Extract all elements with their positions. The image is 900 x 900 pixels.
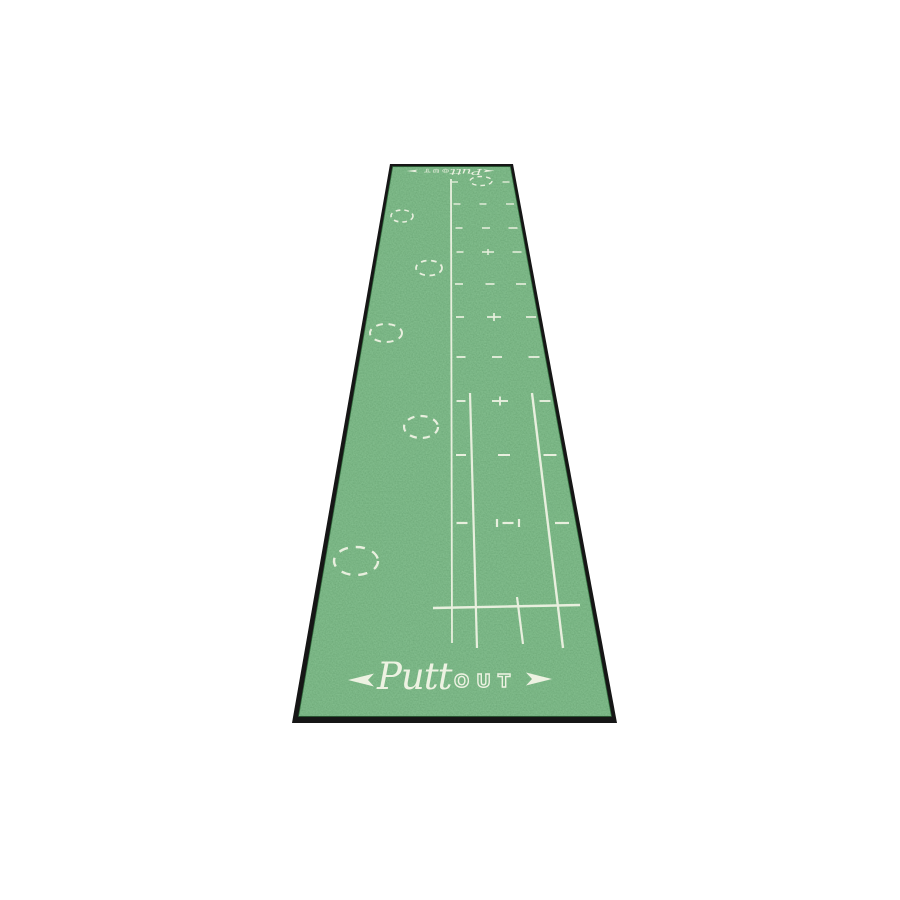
- logo-caps-text: OUT: [454, 671, 517, 692]
- logo-script-text: Putt: [448, 167, 483, 177]
- logo-script-text: Putt: [376, 655, 453, 698]
- center-alignment-line: [451, 179, 452, 643]
- logo-caps-text: OUT: [422, 168, 449, 173]
- mat-turf-texture: [280, 150, 630, 735]
- putting-mat-photo: Putt OUT Putt OUT: [0, 0, 900, 900]
- product-photo-stage: Putt OUT Putt OUT: [0, 0, 900, 900]
